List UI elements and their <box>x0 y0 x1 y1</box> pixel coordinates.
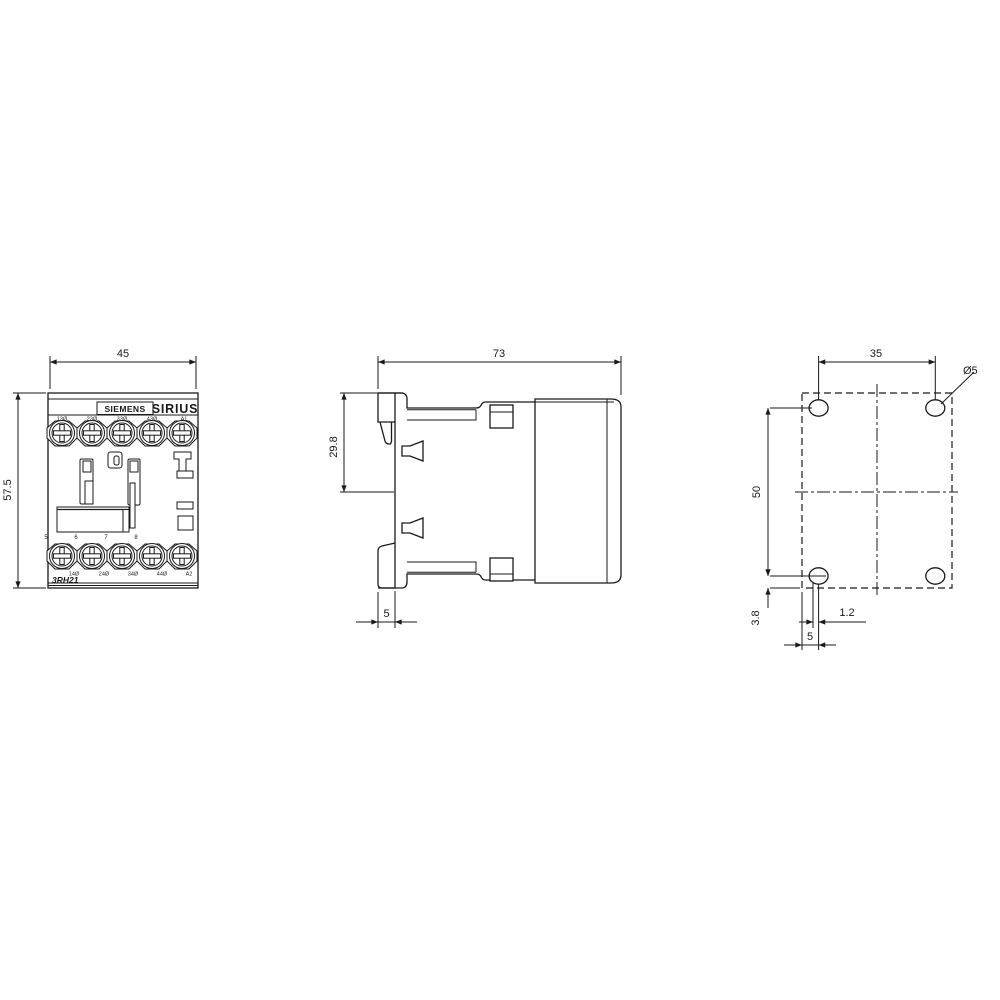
coil-terminal-block <box>490 405 513 428</box>
edge-offset-dimension: 5 <box>784 592 836 650</box>
screw-terminal <box>47 421 77 447</box>
front-width-dimension: 45 <box>50 348 196 389</box>
side-depth-dimension: 73 <box>378 348 621 395</box>
hole-diameter-callout: Ø5 <box>941 365 978 404</box>
slot-offset-label: 1.2 <box>839 607 854 619</box>
edge-offset-label: 5 <box>807 631 813 643</box>
screw-terminal <box>167 544 197 570</box>
hole-spacing-v-label: 50 <box>751 486 763 498</box>
front-top-screws <box>47 421 197 447</box>
din-release-lug <box>402 441 423 461</box>
side-clip-dimension: 5 <box>356 591 417 628</box>
coil-terminal-block <box>490 558 513 581</box>
mounting-hole <box>926 568 945 584</box>
screw-terminal <box>107 421 137 447</box>
side-rail-label: 29.8 <box>328 436 340 457</box>
terminal-label: A2 <box>186 572 193 578</box>
screw-terminal <box>137 421 167 447</box>
bottom-offset-dimension: 3.8 <box>750 556 800 626</box>
front-label-band: SIEMENS SIRIUS <box>97 402 198 416</box>
screw-terminal <box>167 421 197 447</box>
front-view: 45 57.5 SIEMENS SIRIUS 13Ø 23Ø 33Ø 43Ø <box>2 348 198 588</box>
side-view: 73 29.8 5 <box>328 348 621 628</box>
hole-diameter-label: Ø5 <box>963 365 978 377</box>
din-release-lug <box>402 518 423 538</box>
model-number-label: 3RH21 <box>52 575 79 585</box>
screw-terminal <box>137 544 167 570</box>
front-height-dimension: 57.5 <box>2 393 46 588</box>
terminal-label: 44Ø <box>157 572 168 578</box>
front-bottom-screws <box>47 544 197 570</box>
mounting-hole <box>926 400 945 416</box>
hole-spacing-v-dimension: 50 <box>751 408 826 576</box>
technical-drawing: 45 57.5 SIEMENS SIRIUS 13Ø 23Ø 33Ø 43Ø <box>0 0 1000 1000</box>
side-main-body <box>535 399 621 583</box>
series-logo-text: SIRIUS <box>152 402 198 416</box>
side-clip-label: 5 <box>383 608 389 620</box>
terminal-label: 24Ø <box>99 572 110 578</box>
hole-spacing-h-label: 35 <box>870 348 882 360</box>
front-height-label: 57.5 <box>2 479 14 500</box>
dimension-drawing-page: 45 57.5 SIEMENS SIRIUS 13Ø 23Ø 33Ø 43Ø <box>0 0 1000 1000</box>
side-profile <box>378 393 621 588</box>
side-depth-label: 73 <box>493 348 505 360</box>
screw-terminal <box>77 421 107 447</box>
side-rail-dimension: 29.8 <box>328 393 394 492</box>
screw-terminal <box>47 544 77 570</box>
drilling-pattern-view: 35 Ø5 50 3.8 1.2 <box>750 348 978 650</box>
bottom-offset-label: 3.8 <box>750 610 762 625</box>
front-width-label: 45 <box>117 348 129 360</box>
terminal-label: 34Ø <box>128 572 139 578</box>
screw-terminal <box>77 544 107 570</box>
screw-terminal <box>107 544 137 570</box>
brand-logo-text: SIEMENS <box>104 404 145 414</box>
